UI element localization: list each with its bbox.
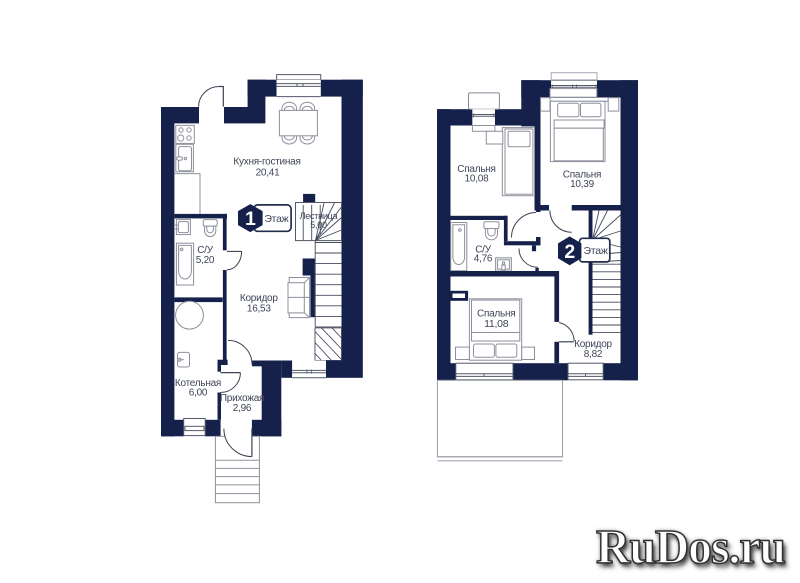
svg-text:11,08: 11,08 [484, 318, 509, 330]
svg-text:10,39: 10,39 [570, 179, 594, 190]
svg-text:10,08: 10,08 [465, 174, 489, 185]
svg-text:20,41: 20,41 [256, 168, 280, 179]
svg-text:5,00: 5,00 [310, 220, 327, 230]
svg-text:Этаж: Этаж [264, 213, 288, 225]
svg-text:8,82: 8,82 [584, 349, 603, 360]
svg-text:4,76: 4,76 [474, 254, 493, 265]
svg-text:16,53: 16,53 [247, 304, 271, 315]
svg-text:6,00: 6,00 [189, 388, 208, 399]
svg-text:5,20: 5,20 [196, 255, 215, 266]
svg-text:1: 1 [245, 208, 256, 230]
svg-text:Этаж: Этаж [584, 245, 608, 257]
svg-text:Коридор: Коридор [240, 293, 278, 304]
svg-text:Кухня-гостиная: Кухня-гостиная [233, 157, 300, 168]
svg-text:2: 2 [564, 241, 575, 263]
svg-text:2,96: 2,96 [233, 403, 252, 414]
